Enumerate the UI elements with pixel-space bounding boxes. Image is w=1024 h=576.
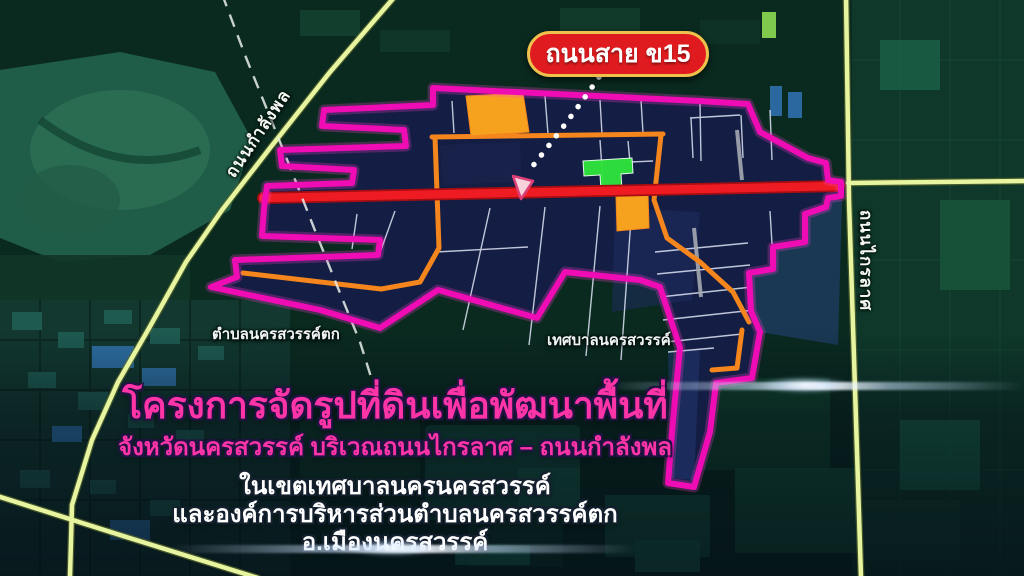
- road-callout-pill: ถนนสาย ข15: [527, 31, 709, 77]
- area-label-tambon-nakhonsawan-tok: ตำบลนครสวรรค์ตก: [212, 322, 340, 346]
- map-infographic: ถนนสาย ข15 ถนนกำลังพล ถนนไกรลาศ ตำบลนครส…: [0, 0, 1024, 576]
- project-title: โครงการจัดรูปที่ดินเพื่อพัฒนาพื้นที่: [10, 386, 780, 426]
- road-label-krailat: ถนนไกรลาศ: [853, 186, 880, 336]
- project-jurisdiction: ในเขตเทศบาลนครนครสวรรค์ และองค์การบริหาร…: [10, 473, 780, 557]
- jurisdiction-line-2: และองค์การบริหารส่วนตำบลนครสวรรค์ตก: [10, 501, 780, 529]
- road-callout-label: ถนนสาย ข15: [545, 42, 690, 67]
- jurisdiction-line-1: ในเขตเทศบาลนครนครสวรรค์: [10, 473, 780, 501]
- caption-block: โครงการจัดรูปที่ดินเพื่อพัฒนาพื้นที่ จัง…: [10, 386, 780, 557]
- project-subtitle: จังหวัดนครสวรรค์ บริเวณถนนไกรลาศ – ถนนกำ…: [10, 427, 780, 466]
- area-label-thesaban-nakhonsawan: เทศบาลนครสวรรค์: [547, 328, 671, 352]
- jurisdiction-line-3: อ.เมืองนครสวรรค์: [10, 529, 780, 557]
